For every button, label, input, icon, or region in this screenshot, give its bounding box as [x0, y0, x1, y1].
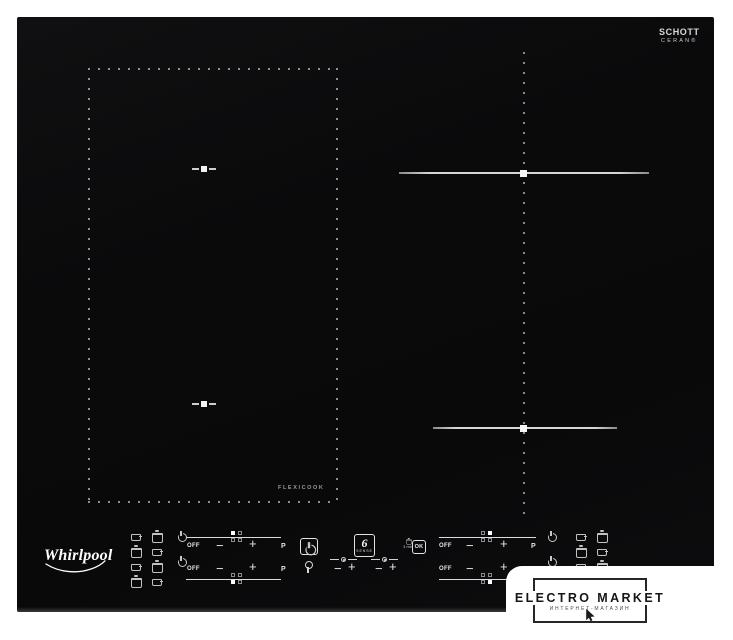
sixth-sense-word: SENSE: [356, 549, 373, 553]
timer-dash: [330, 559, 339, 560]
timer-dash: [371, 559, 380, 560]
pan-icon: [151, 575, 162, 585]
zone3-minus-control: −: [466, 541, 474, 551]
whirlpool-logo: Whirlpool: [44, 547, 116, 581]
zone-position-indicator: [231, 573, 242, 584]
zone2-plus-control: +: [249, 562, 257, 572]
marker-dash: [209, 403, 216, 404]
indicator-square: [481, 538, 485, 542]
indicator-square: [488, 580, 492, 584]
zone2-minus-control: −: [216, 564, 224, 574]
dotted-edge-bottom: [88, 501, 338, 503]
pot-icon: [151, 560, 162, 570]
power-icon: [304, 542, 314, 552]
store-name: ELECTRO MARKET: [511, 591, 669, 605]
standby-icon: [177, 531, 185, 539]
cookware-size-indicators-left: [130, 530, 163, 585]
indicator-square: [481, 580, 485, 584]
indicator-square: [231, 573, 235, 577]
zone-center-square: [520, 170, 527, 177]
indicator-square: [488, 573, 492, 577]
flexicook-marker-icon: [192, 166, 216, 172]
dotted-edge-left: [88, 68, 90, 503]
store-watermark: ELECTRO MARKET ИНТЕРНЕТ-МАГАЗИН: [506, 566, 733, 640]
standby-icon: [177, 556, 185, 564]
zone3-booster-label: P: [531, 543, 536, 550]
flexicook-label: FLEXICOOK: [278, 485, 324, 491]
pan-icon: [575, 530, 586, 540]
timer-right-minus: −: [375, 564, 383, 574]
pan-icon: [596, 545, 607, 555]
cooking-zone-line-top: [399, 172, 649, 174]
sixth-sense-number: 6: [362, 538, 368, 549]
zone-position-indicator: [231, 531, 242, 542]
pan-icon: [130, 560, 141, 570]
indicator-square: [238, 531, 242, 535]
pan-icon: [130, 530, 141, 540]
product-photo: SCHOTT CERAN® FLEXICOOK Whirlpool: [0, 0, 733, 640]
pot-icon: [596, 530, 607, 540]
standby-icon: [547, 556, 555, 564]
schott-text: SCHOTT: [659, 27, 700, 37]
timer-left-plus: +: [348, 562, 356, 572]
timer-dot-icon: [382, 557, 387, 562]
pot-icon: [130, 545, 141, 555]
zone3-plus-control: +: [500, 539, 508, 549]
zone3-off-label: OFF: [439, 543, 452, 549]
zone-position-indicator: [481, 531, 492, 542]
ok-label: OK: [415, 544, 424, 550]
key-lock-icon: [305, 561, 311, 573]
zone2-off-label: OFF: [187, 566, 200, 572]
cursor-icon: [585, 608, 596, 622]
pan-icon: [151, 545, 162, 555]
timer-right-plus: +: [389, 562, 397, 572]
indicator-square: [488, 538, 492, 542]
marker-dash: [192, 403, 199, 404]
timer-dot-icon: [341, 557, 346, 562]
zone1-plus-control: +: [249, 539, 257, 549]
pot-icon: [151, 530, 162, 540]
indicator-square: [231, 538, 235, 542]
indicator-square: [231, 580, 235, 584]
marker-dash: [192, 168, 199, 169]
flexicook-marker-icon: [192, 401, 216, 407]
marker-square: [201, 401, 207, 407]
indicator-square: [238, 580, 242, 584]
indicator-square: [238, 573, 242, 577]
main-power-button: [300, 538, 318, 555]
cooking-zone-line-bottom: [433, 427, 617, 429]
indicator-square: [481, 573, 485, 577]
zone4-plus-control: +: [500, 562, 508, 572]
schott-ceran-logo: SCHOTT CERAN®: [659, 27, 700, 44]
mini-pot-icon: [405, 538, 411, 543]
zone-position-indicator: [481, 573, 492, 584]
marker-square: [201, 166, 207, 172]
ok-button: OK: [412, 540, 426, 554]
dotted-edge-right: [336, 68, 338, 503]
ceran-text: CERAN®: [659, 38, 700, 44]
pot-icon: [575, 545, 586, 555]
zone1-booster-label: P: [281, 543, 286, 550]
marker-dash: [209, 168, 216, 169]
pot-icon: [130, 575, 141, 585]
zone-divider-dotted-line: [523, 52, 525, 518]
zone2-booster-label: P: [281, 566, 286, 573]
standby-icon: [547, 531, 555, 539]
sixth-sense-button: 6 SENSE: [354, 534, 375, 557]
indicator-square: [488, 531, 492, 535]
flexicook-zone-outline: FLEXICOOK: [88, 68, 338, 503]
zone1-minus-control: −: [216, 541, 224, 551]
whirlpool-swoosh: [44, 560, 108, 574]
zone4-minus-control: −: [466, 564, 474, 574]
dotted-edge-top: [88, 68, 338, 70]
indicator-square: [481, 531, 485, 535]
indicator-square: [238, 538, 242, 542]
zone-center-square: [520, 425, 527, 432]
zone1-off-label: OFF: [187, 543, 200, 549]
indicator-square: [231, 531, 235, 535]
zone4-off-label: OFF: [439, 566, 452, 572]
timer-left-minus: −: [334, 564, 342, 574]
